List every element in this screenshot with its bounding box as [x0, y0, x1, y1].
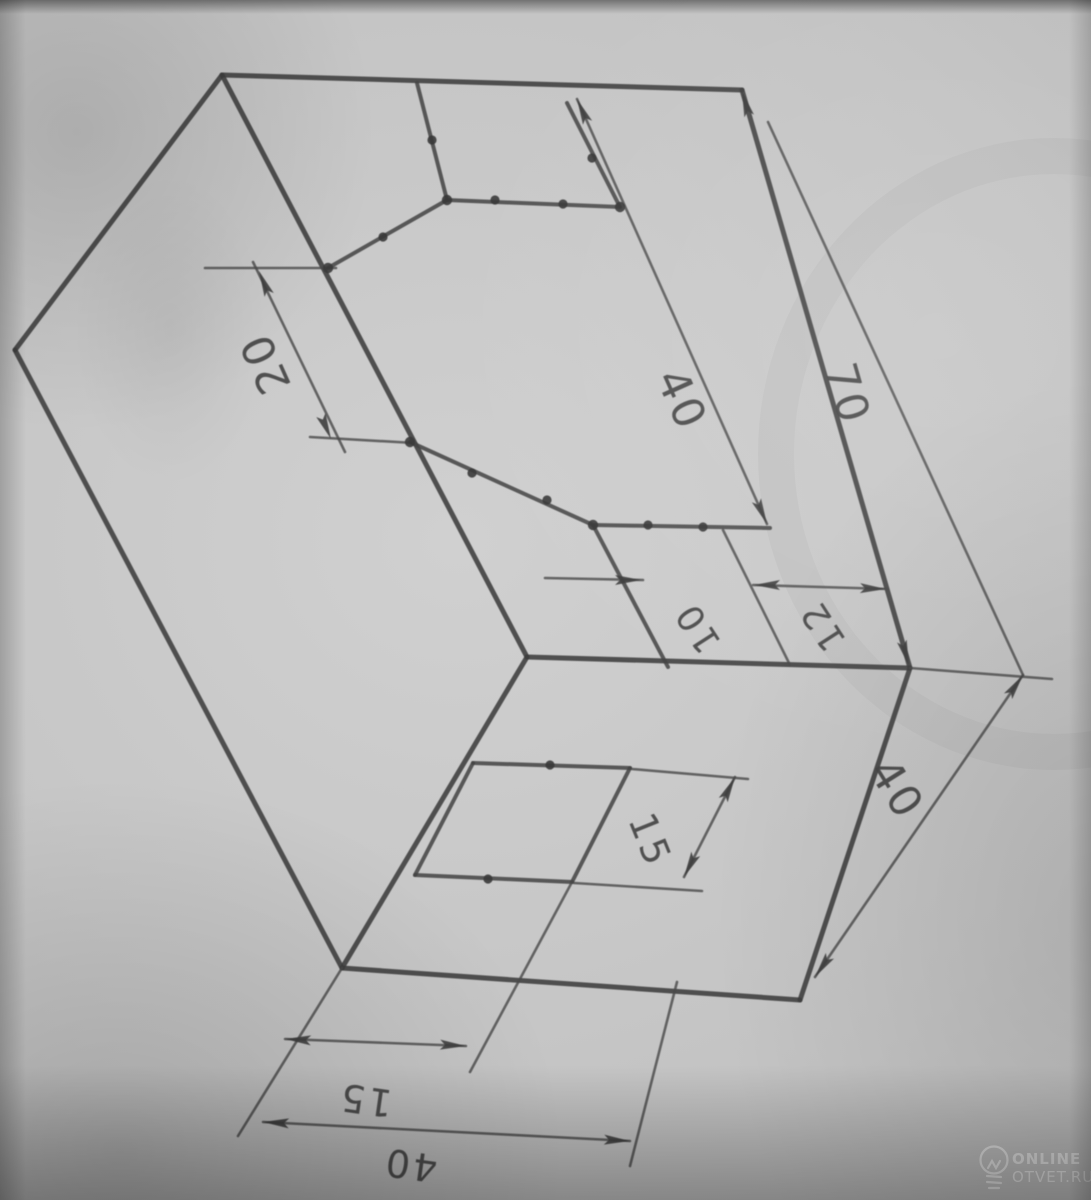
watermark-text-bottom: OTVET.RU — [1012, 1168, 1091, 1186]
lightbulb-icon — [981, 1147, 1008, 1189]
bulb-glass — [981, 1147, 1008, 1174]
site-watermark: ONLINE OTVET.RU — [0, 0, 1091, 1200]
watermark-text-top: ONLINE — [1012, 1150, 1081, 1168]
bulb-base-line — [987, 1182, 1001, 1183]
bulb-base-line — [987, 1176, 1001, 1177]
scanned-drawing-photo: 20 40 70 40 10 12 15 15 40 ONLINE OTVET.… — [0, 0, 1091, 1200]
bulb-filament — [988, 1161, 1000, 1168]
